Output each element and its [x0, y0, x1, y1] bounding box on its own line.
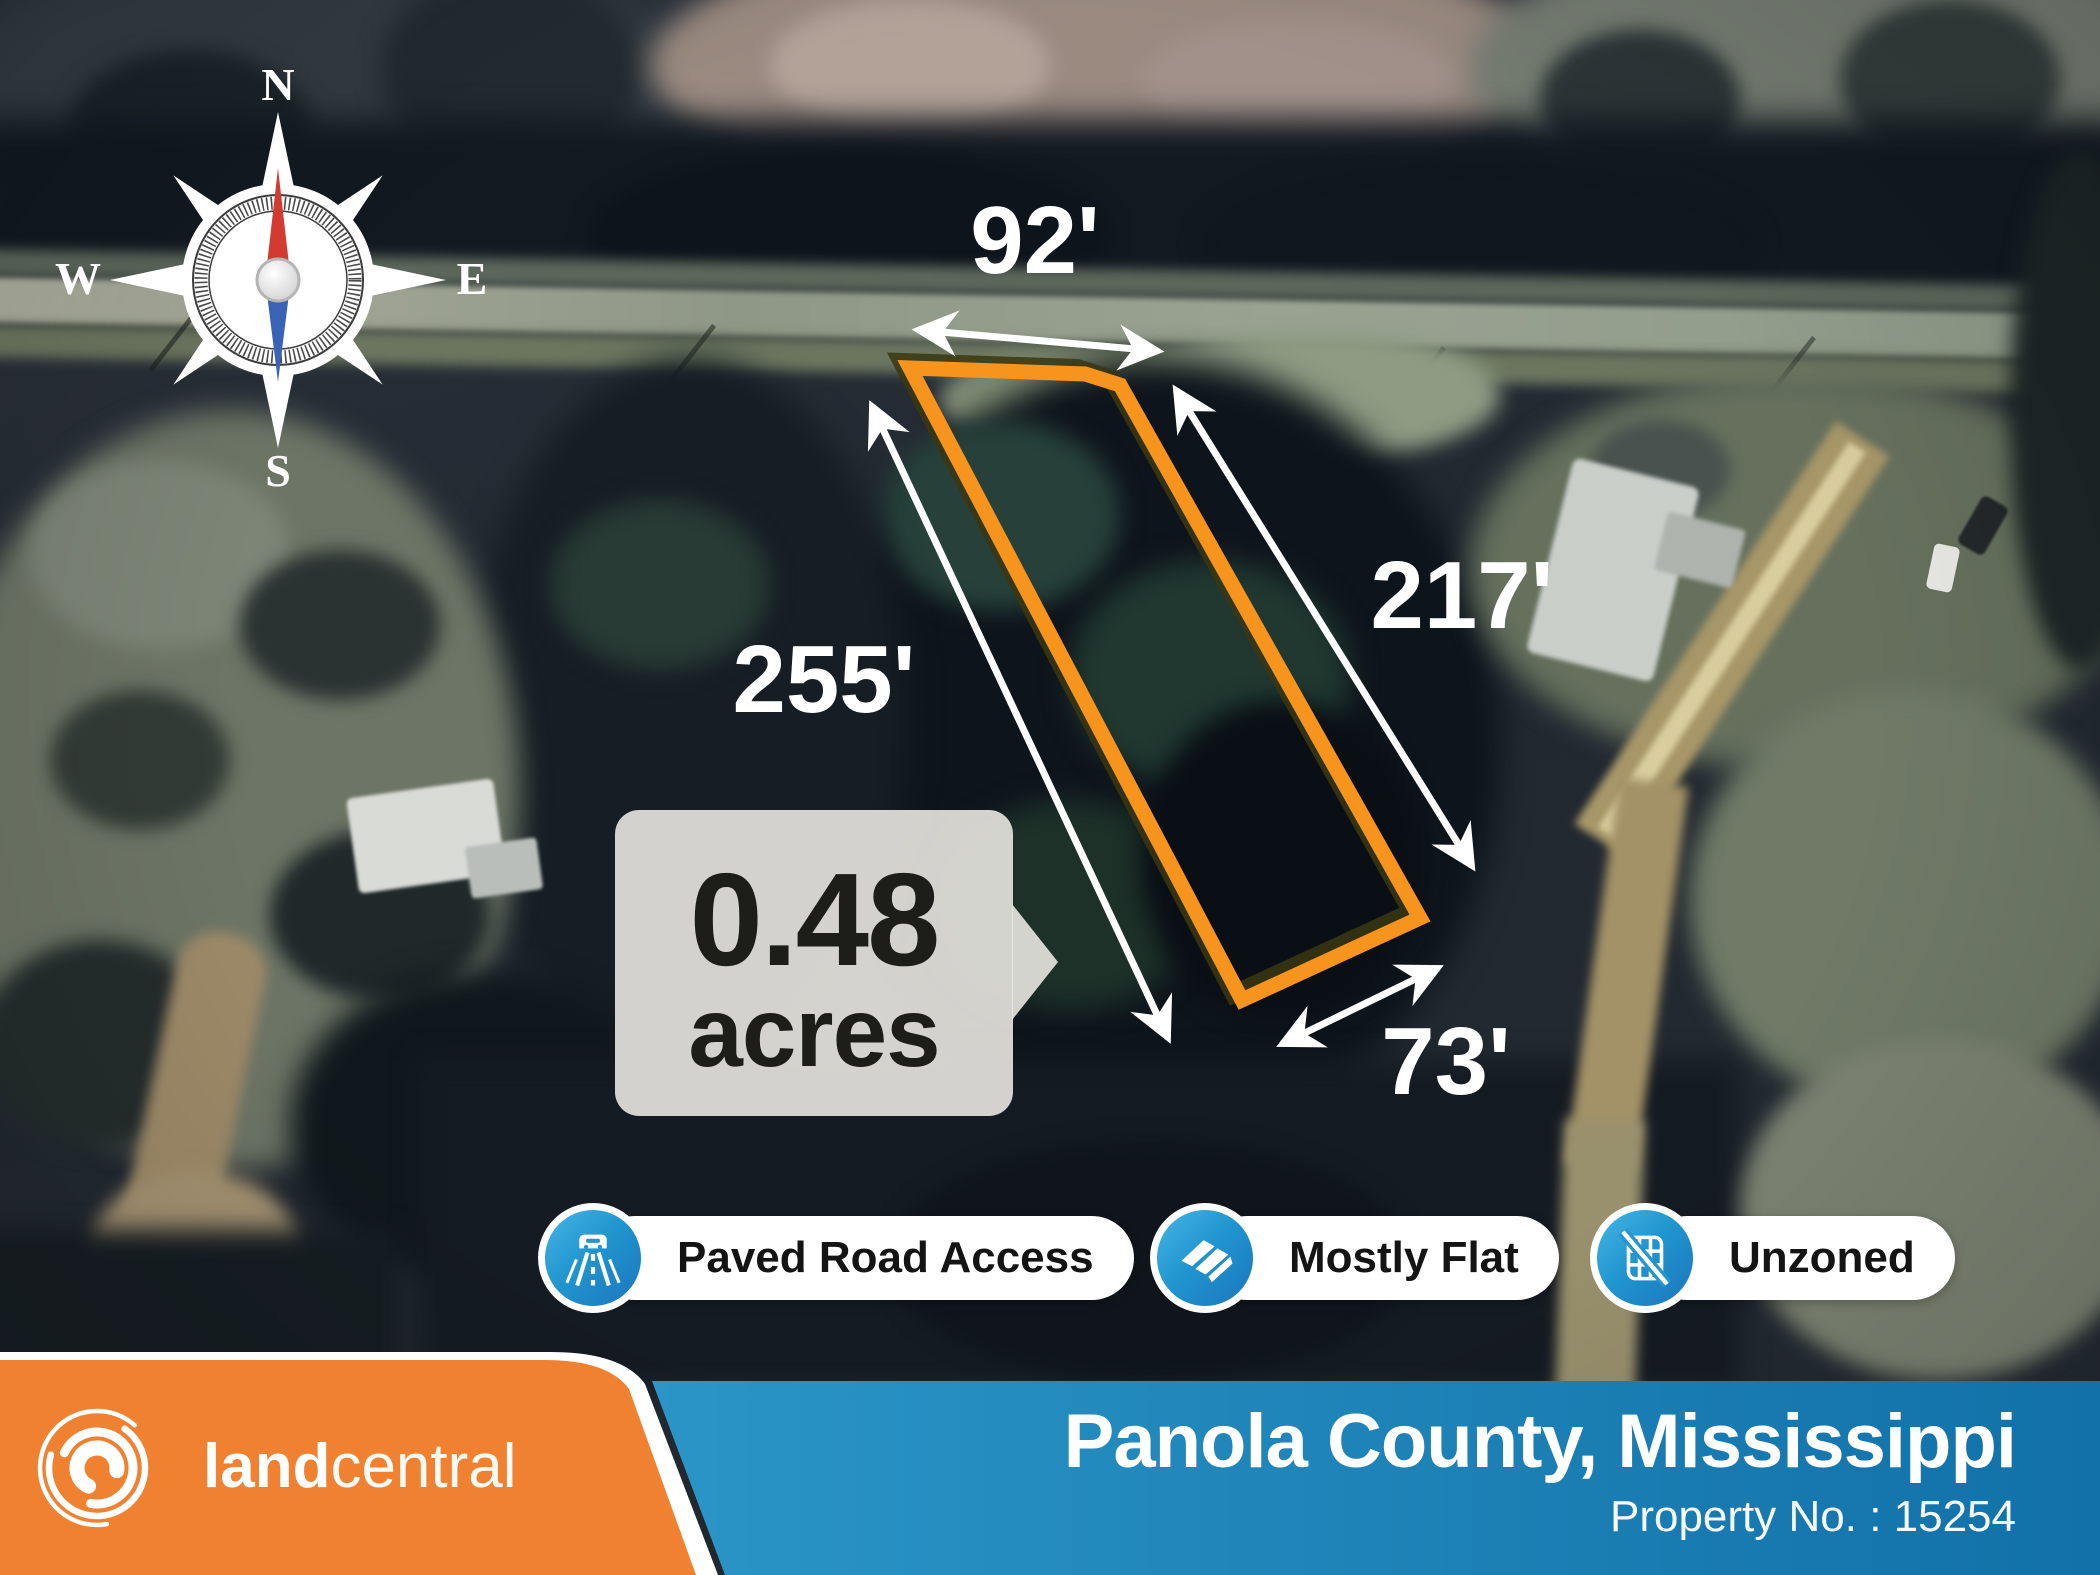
callout-pointer — [1012, 904, 1058, 1020]
property-number: Property No. : 15254 — [1064, 1492, 2016, 1542]
brand-bold: land — [203, 1432, 330, 1501]
badge-label: Paved Road Access — [677, 1233, 1094, 1283]
compass-label-north: N — [248, 62, 308, 108]
dimension-label-bottom: 73' — [1346, 1014, 1546, 1110]
property-flyer: N S W E 92' 255' 217' 73' 0.48 acres Pav… — [0, 0, 2100, 1575]
dim-arrow-top — [918, 330, 1158, 351]
dimension-label-top: 92' — [915, 193, 1155, 289]
compass-rose-icon — [69, 71, 488, 490]
area-value: 0.48 — [615, 810, 1013, 986]
dimension-label-right: 217' — [1337, 548, 1587, 644]
dimension-label-left: 255' — [699, 632, 949, 728]
compass-label-west: W — [48, 256, 108, 302]
landcentral-wordmark: landcentral — [203, 1436, 517, 1498]
paved-road-icon — [538, 1203, 648, 1313]
property-location-block: Panola County, Mississippi Property No. … — [1064, 1404, 2016, 1542]
badge-label: Unzoned — [1729, 1233, 1915, 1283]
compass-label-south: S — [248, 448, 308, 494]
area-unit: acres — [615, 986, 1013, 1079]
badge-label: Mostly Flat — [1289, 1233, 1519, 1283]
property-location: Panola County, Mississippi — [1064, 1404, 2016, 1480]
unzoned-icon — [1590, 1203, 1700, 1313]
compass-label-east: E — [442, 256, 502, 302]
brand-light: central — [330, 1432, 516, 1501]
area-callout: 0.48 acres — [615, 810, 1013, 1116]
mostly-flat-icon — [1150, 1203, 1260, 1313]
